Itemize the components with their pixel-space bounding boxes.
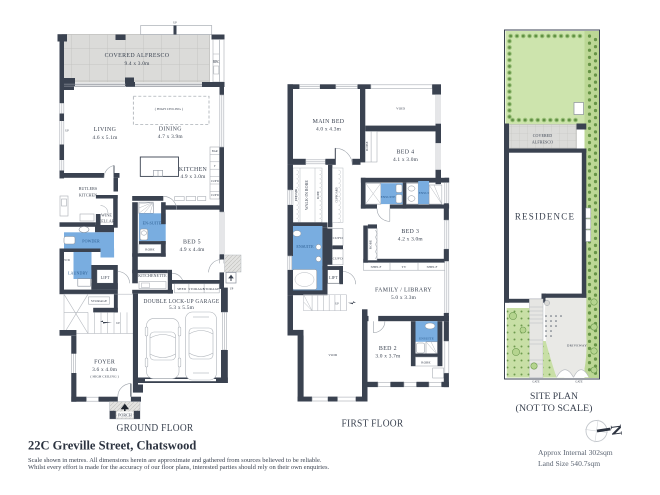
- svg-text:ENSUITE: ENSUITE: [296, 244, 314, 249]
- svg-text:BED 4: BED 4: [397, 150, 415, 156]
- svg-text:VOID: VOID: [328, 353, 337, 357]
- svg-text:DRESSER: DRESSER: [295, 189, 298, 201]
- svg-text:ROBE: ROBE: [365, 141, 369, 150]
- svg-text:SHED: SHED: [177, 287, 187, 291]
- svg-text:KITCHENETTE: KITCHENETTE: [138, 273, 167, 278]
- svg-text:9.4 x 3.0m: 9.4 x 3.0m: [124, 61, 150, 67]
- svg-text:GROUND FLOOR: GROUND FLOOR: [117, 423, 194, 434]
- svg-text:VOID: VOID: [396, 107, 405, 111]
- svg-text:4.9 x 3.0m: 4.9 x 3.0m: [180, 174, 206, 180]
- svg-text:FIRST FLOOR: FIRST FLOOR: [342, 419, 404, 430]
- svg-text:ROBE: ROBE: [317, 191, 320, 199]
- svg-text:PORCH: PORCH: [118, 413, 132, 418]
- svg-text:WINE: WINE: [101, 213, 112, 218]
- svg-text:FAMILY / LIBRARY: FAMILY / LIBRARY: [375, 288, 432, 294]
- svg-text:CUPBOARD: CUPBOARD: [336, 187, 339, 202]
- svg-text:UP: UP: [116, 322, 120, 325]
- svg-text:KITCHEN: KITCHEN: [79, 193, 97, 198]
- svg-text:TV: TV: [402, 265, 407, 269]
- svg-text:Whilst every effort is made fo: Whilst every effort is made for the accu…: [28, 464, 330, 471]
- svg-text:3.6 x 4.0m: 3.6 x 4.0m: [92, 367, 118, 373]
- svg-text:LIFT: LIFT: [329, 275, 338, 280]
- svg-text:SHELF: SHELF: [427, 265, 438, 269]
- svg-text:4.6 x 5.1m: 4.6 x 5.1m: [92, 135, 118, 141]
- svg-text:POWDER: POWDER: [82, 239, 100, 244]
- svg-text:EN-SUITE: EN-SUITE: [143, 221, 162, 226]
- svg-text:LAUNDRY: LAUNDRY: [68, 271, 88, 276]
- svg-text:COVERED ALFRESCO: COVERED ALFRESCO: [105, 53, 170, 59]
- svg-text:5.0 x 3.3m: 5.0 x 3.3m: [391, 295, 417, 301]
- svg-text:CELLAR: CELLAR: [98, 219, 114, 224]
- svg-text:ENSUITE: ENSUITE: [419, 337, 434, 341]
- svg-text:GATE: GATE: [532, 381, 539, 384]
- svg-text:STORAGE: STORAGE: [203, 287, 219, 291]
- svg-text:CUP'D: CUP'D: [211, 180, 219, 183]
- svg-text:RESIDENCE: RESIDENCE: [515, 212, 575, 222]
- svg-text:ROBE: ROBE: [145, 248, 154, 252]
- svg-text:(NOT TO SCALE): (NOT TO SCALE): [516, 403, 593, 413]
- svg-text:BED 5: BED 5: [183, 240, 201, 246]
- svg-text:FOYER: FOYER: [94, 360, 115, 366]
- svg-text:BED 3: BED 3: [401, 229, 419, 235]
- svg-text:( HIGH CEILING ): ( HIGH CEILING ): [155, 107, 183, 111]
- svg-text:UP: UP: [230, 288, 234, 291]
- svg-text:MAIN BED: MAIN BED: [313, 119, 345, 125]
- svg-text:CUP'D: CUP'D: [211, 194, 219, 197]
- svg-text:STORAGE: STORAGE: [91, 299, 107, 303]
- svg-text:ALFRESCO: ALFRESCO: [532, 140, 553, 145]
- svg-text:4.0 x 4.3m: 4.0 x 4.3m: [316, 127, 342, 133]
- svg-text:UP: UP: [335, 303, 339, 306]
- svg-text:WALK-IN ROBE: WALK-IN ROBE: [304, 180, 309, 210]
- svg-text:BAR: BAR: [212, 150, 218, 153]
- svg-text:SITE PLAN: SITE PLAN: [530, 391, 578, 402]
- svg-text:DRIVEWAY: DRIVEWAY: [567, 344, 587, 348]
- svg-text:4.7 x 3.9m: 4.7 x 3.9m: [158, 134, 184, 140]
- svg-text:Land Size 540.7sqm: Land Size 540.7sqm: [538, 459, 600, 468]
- svg-text:GATE: GATE: [575, 381, 582, 384]
- svg-text:UP: UP: [173, 22, 177, 25]
- svg-text:ENSUITE: ENSUITE: [381, 195, 396, 199]
- svg-text:DINING: DINING: [159, 127, 182, 133]
- svg-text:3.0 x 3.7m: 3.0 x 3.7m: [375, 354, 401, 360]
- svg-text:CUP'D: CUP'D: [333, 236, 344, 240]
- svg-text:UP: UP: [65, 130, 69, 133]
- svg-text:Scale shown in metres. All dim: Scale shown in metres. All dimensions he…: [28, 457, 322, 464]
- svg-text:SHELF: SHELF: [371, 265, 382, 269]
- svg-text:LIVING: LIVING: [94, 127, 117, 133]
- svg-text:W/D: W/D: [64, 259, 69, 262]
- svg-text:Approx Internal 302sqm: Approx Internal 302sqm: [538, 448, 613, 457]
- svg-text:CUP'D: CUP'D: [333, 257, 344, 261]
- svg-text:( HIGH CEILING ): ( HIGH CEILING ): [90, 375, 118, 379]
- svg-text:5.3 x 5.5m: 5.3 x 5.5m: [169, 305, 195, 311]
- svg-text:KITCHEN: KITCHEN: [179, 167, 208, 173]
- svg-text:LIFT: LIFT: [101, 275, 110, 280]
- svg-text:4.2 x 3.0m: 4.2 x 3.0m: [398, 237, 424, 243]
- svg-text:4.9 x 4.4m: 4.9 x 4.4m: [179, 247, 205, 253]
- svg-text:ROBE: ROBE: [421, 361, 430, 365]
- svg-text:COVERED: COVERED: [533, 133, 553, 138]
- svg-text:22C Greville Street, Chatswood: 22C Greville Street, Chatswood: [28, 439, 196, 453]
- svg-text:ROBE: ROBE: [369, 240, 373, 249]
- svg-text:BUTLERS: BUTLERS: [79, 186, 97, 191]
- svg-text:4.1 x 3.0m: 4.1 x 3.0m: [393, 157, 419, 163]
- svg-text:BED 2: BED 2: [379, 346, 397, 352]
